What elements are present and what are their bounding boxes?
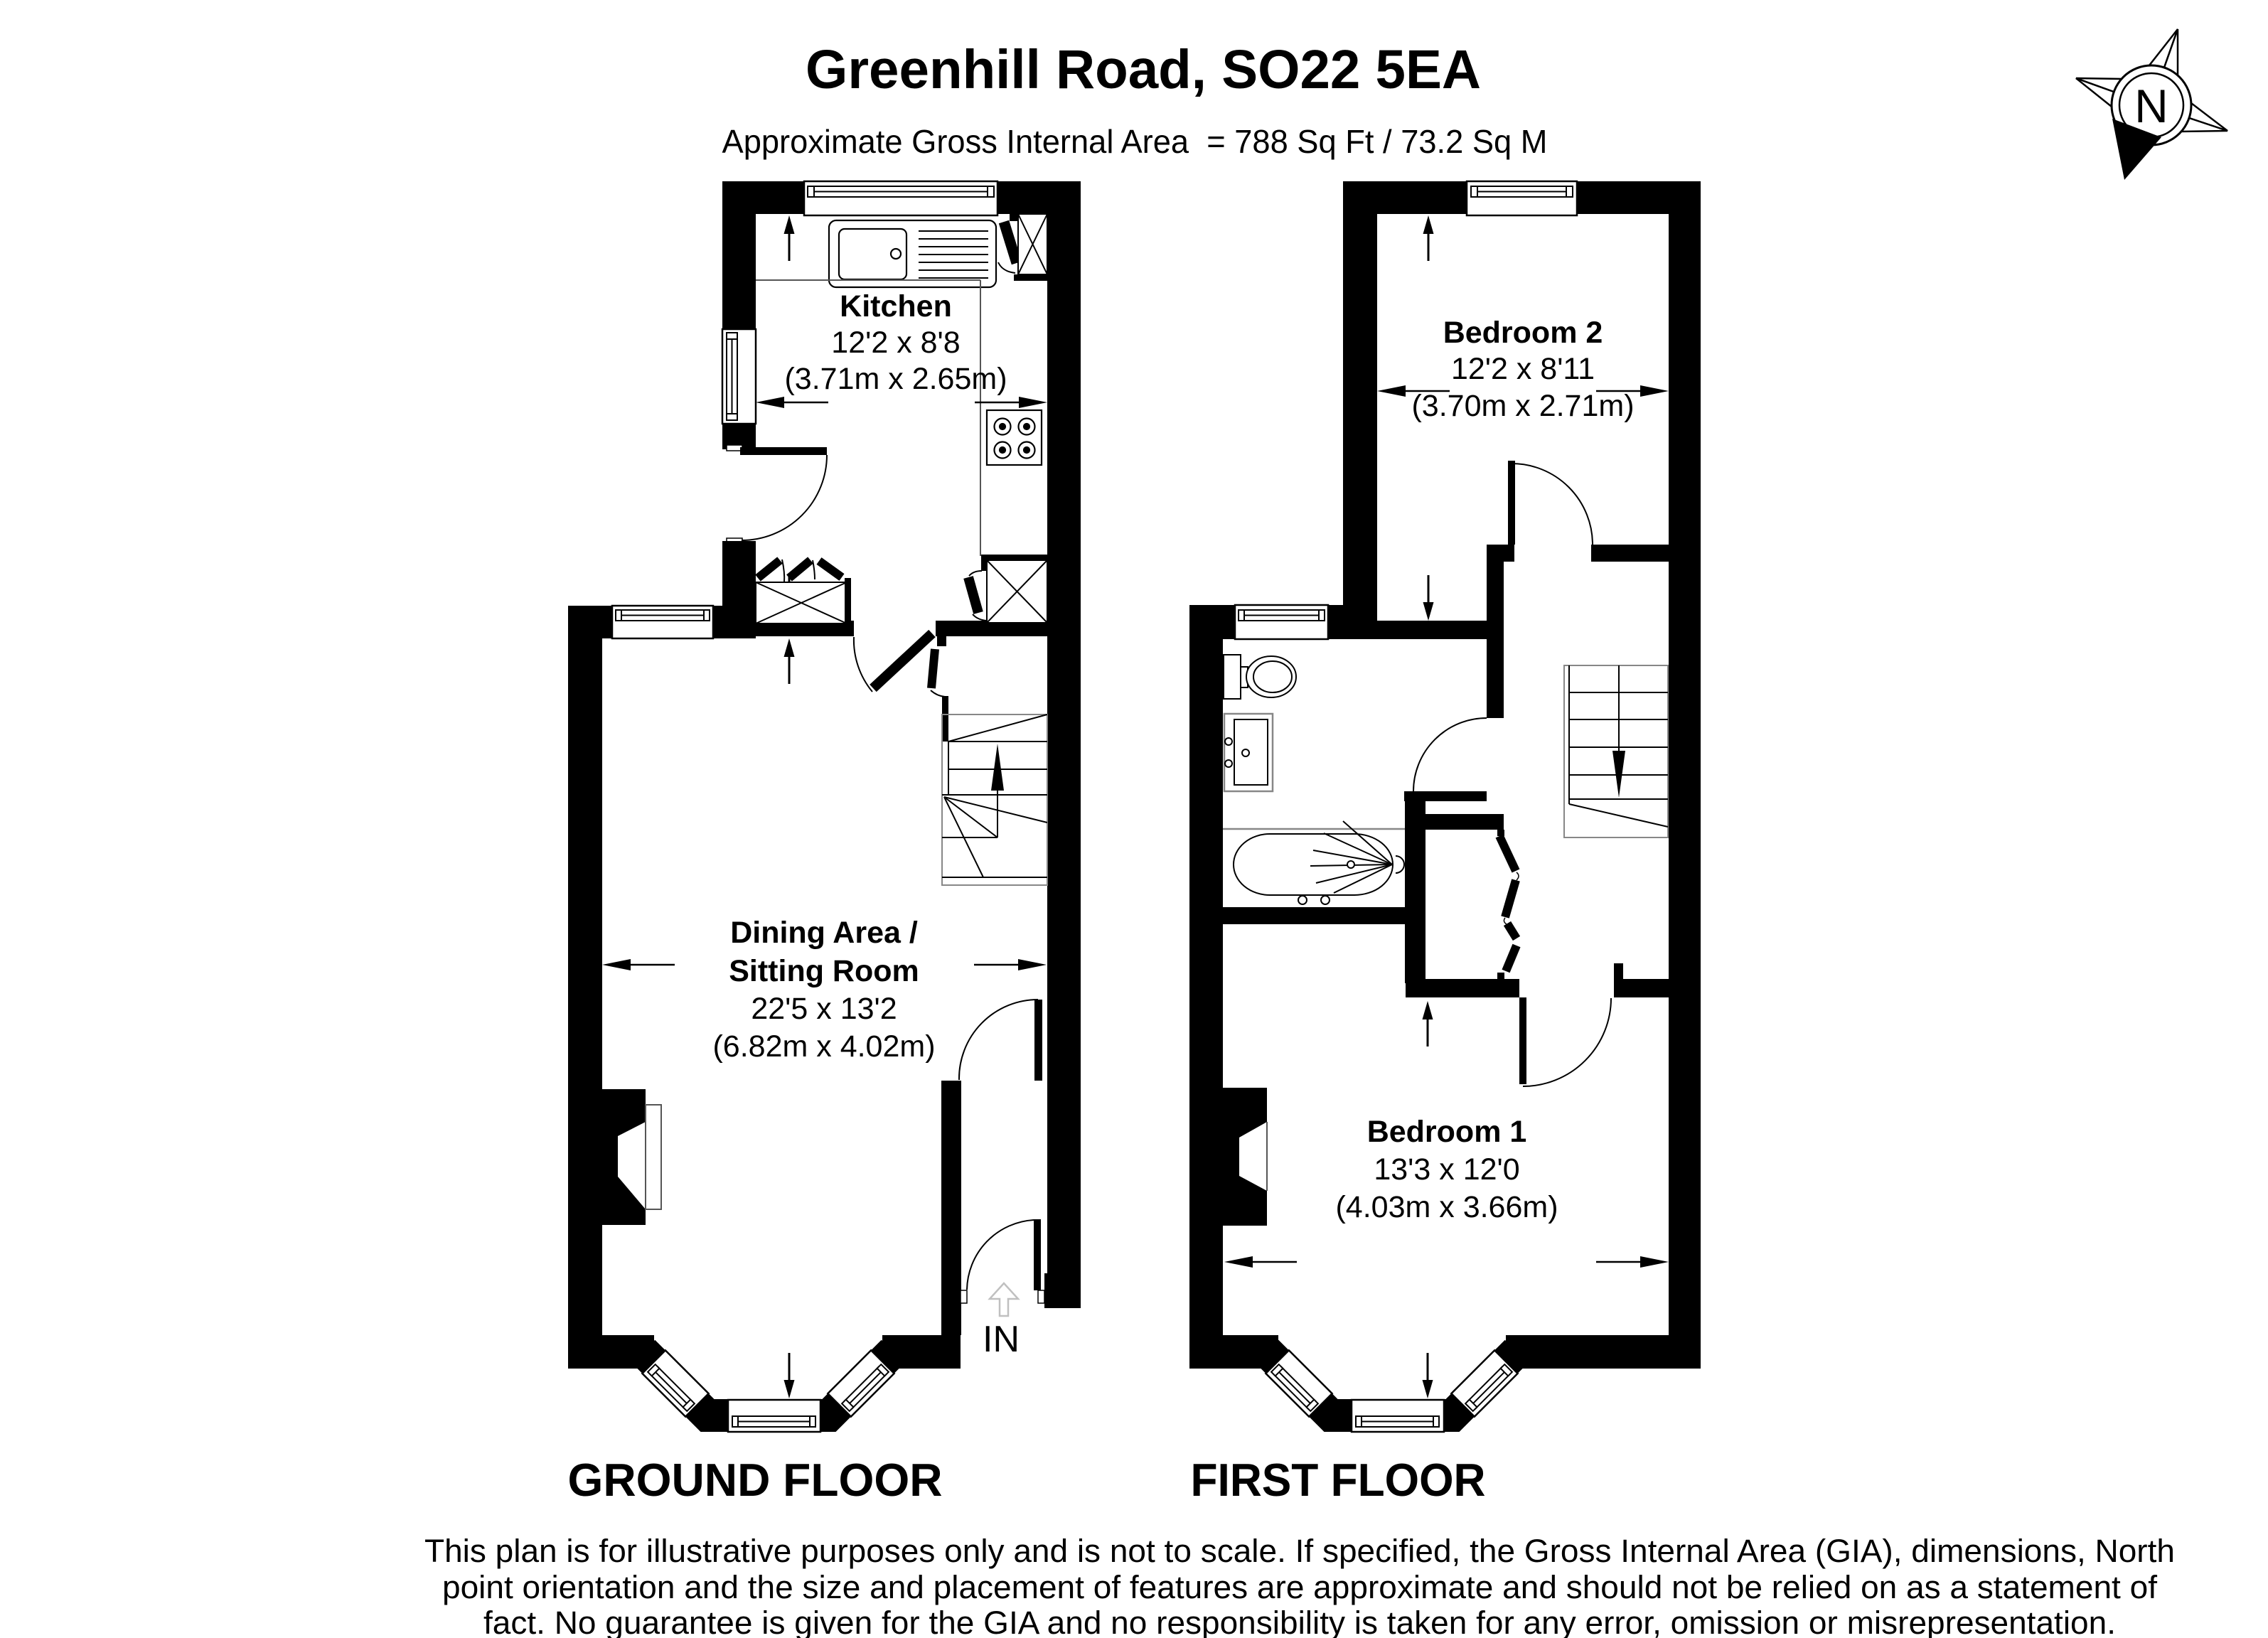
svg-text:GROUND FLOOR: GROUND FLOOR xyxy=(568,1454,943,1506)
svg-text:12'2 x 8'11: 12'2 x 8'11 xyxy=(1451,352,1595,386)
svg-text:(3.71m x 2.65m): (3.71m x 2.65m) xyxy=(784,362,1007,396)
svg-text:Bedroom 2: Bedroom 2 xyxy=(1443,316,1603,350)
svg-text:This plan is for illustrative: This plan is for illustrative purposes o… xyxy=(424,1533,2175,1569)
svg-text:(3.70m x 2.71m): (3.70m x 2.71m) xyxy=(1411,389,1634,423)
svg-text:IN: IN xyxy=(983,1319,1020,1360)
svg-text:(4.03m x 3.66m): (4.03m x 3.66m) xyxy=(1335,1190,1558,1224)
svg-text:N: N xyxy=(2134,80,2168,132)
svg-text:(6.82m x 4.02m): (6.82m x 4.02m) xyxy=(712,1029,935,1064)
svg-text:FIRST FLOOR: FIRST FLOOR xyxy=(1191,1454,1486,1506)
svg-text:Kitchen: Kitchen xyxy=(840,289,952,323)
svg-text:13'3 x 12'0: 13'3 x 12'0 xyxy=(1374,1152,1519,1187)
svg-text:Approximate Gross Internal Are: Approximate Gross Internal Area = 788 Sq… xyxy=(722,123,1548,160)
svg-text:fact. No guarantee is given fo: fact. No guarantee is given for the GIA … xyxy=(483,1605,2116,1638)
svg-text:Sitting Room: Sitting Room xyxy=(729,954,919,988)
svg-text:Dining Area /: Dining Area / xyxy=(730,916,918,950)
svg-text:point orientation and the size: point orientation and the size and place… xyxy=(442,1569,2158,1605)
svg-text:Bedroom 1: Bedroom 1 xyxy=(1367,1115,1527,1149)
svg-text:12'2 x 8'8: 12'2 x 8'8 xyxy=(831,326,960,360)
svg-text:Greenhill Road, SO22 5EA: Greenhill Road, SO22 5EA xyxy=(806,39,1481,100)
svg-text:22'5 x 13'2: 22'5 x 13'2 xyxy=(751,992,897,1026)
